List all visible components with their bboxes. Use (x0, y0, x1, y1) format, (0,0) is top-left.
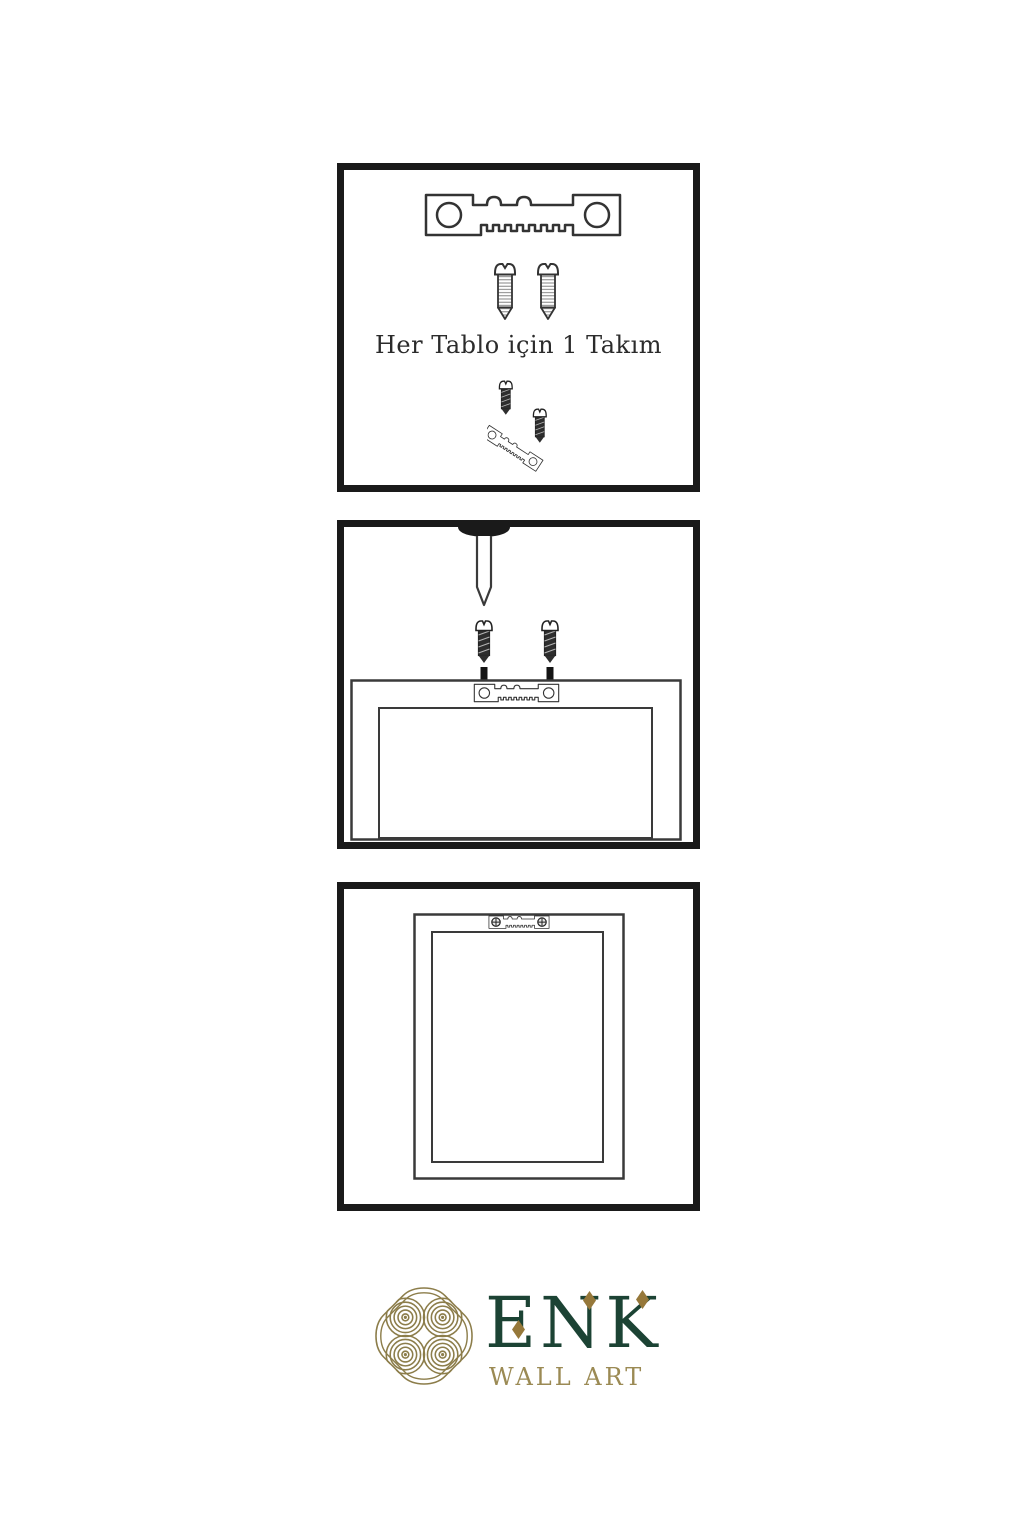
screwdriver-icon (452, 527, 516, 613)
step-2-attach-hanger-panel (337, 520, 700, 849)
frame-back-with-hanger-icon (350, 679, 682, 841)
screw-icon (539, 617, 561, 665)
brand-diamond-accent-icon (583, 1291, 596, 1310)
angled-hanger-with-screws-icon (487, 378, 583, 480)
screw-icon (534, 259, 562, 323)
screw-icon (473, 617, 495, 665)
sawtooth-hanger-icon (423, 192, 623, 238)
brand-diamond-accent-icon (636, 1290, 649, 1309)
brand-tagline: WALL ART (489, 1364, 644, 1390)
brand-footer: ENK WALL ART (375, 1278, 675, 1418)
screw-icon (491, 259, 519, 323)
brand-diamond-accent-icon (512, 1320, 525, 1339)
step-1-hardware-kit-panel: Her Tablo için 1 Takım (337, 163, 700, 492)
knot-logo-icon (375, 1284, 473, 1388)
kit-label: Her Tablo için 1 Takım (344, 331, 693, 359)
instruction-sheet: Her Tablo için 1 Takım (0, 0, 1024, 1536)
step-3-mounted-frame-panel (337, 882, 700, 1211)
frame-back-with-mounted-hanger-icon (413, 913, 625, 1180)
